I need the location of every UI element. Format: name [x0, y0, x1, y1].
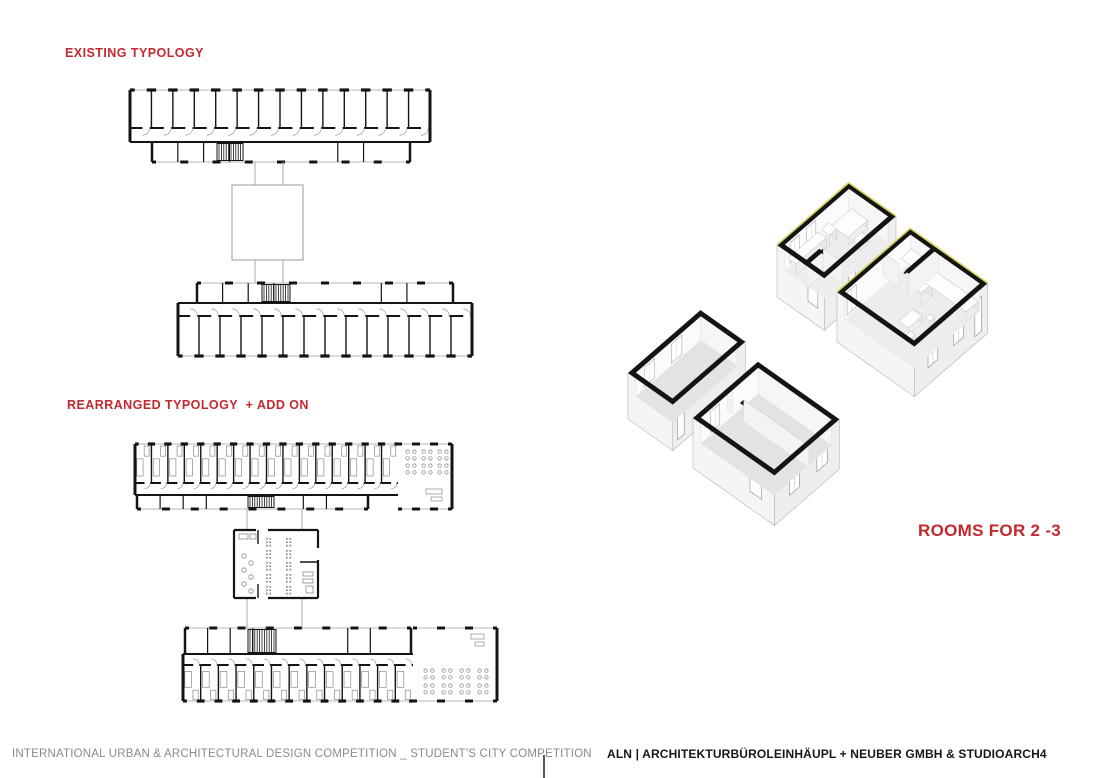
floor-plan-rearranged-wing-north [135, 444, 452, 509]
footer-divider [543, 755, 545, 778]
footer-architects-credit: ALN | ARCHITEKTURBÜROLEINHÄUPL + NEUBER … [607, 747, 1047, 761]
floor-plan-rearranged-wing-south [183, 628, 497, 701]
axonometric-rooms-group [628, 183, 988, 526]
connector-pavilion-rearranged [234, 509, 318, 628]
footer-competition-title: INTERNATIONAL URBAN & ARCHITECTURAL DESI… [12, 748, 592, 760]
connector-pavilion-existing [232, 162, 303, 283]
existing-typology-heading: EXISTING TYPOLOGY [65, 46, 204, 60]
connector-pavilions-group [232, 162, 318, 628]
floor-plan-existing-wing-north [130, 90, 430, 162]
rooms-for-2-3-heading: ROOMS FOR 2 -3 [918, 521, 1061, 541]
floor-plans-group [130, 90, 497, 701]
floor-plan-existing-wing-south [178, 283, 472, 356]
drawing-canvas [0, 0, 1100, 778]
rearranged-typology-heading: REARRANGED TYPOLOGY + ADD ON [67, 398, 309, 412]
presentation-board: EXISTING TYPOLOGY REARRANGED TYPOLOGY + … [0, 0, 1100, 778]
